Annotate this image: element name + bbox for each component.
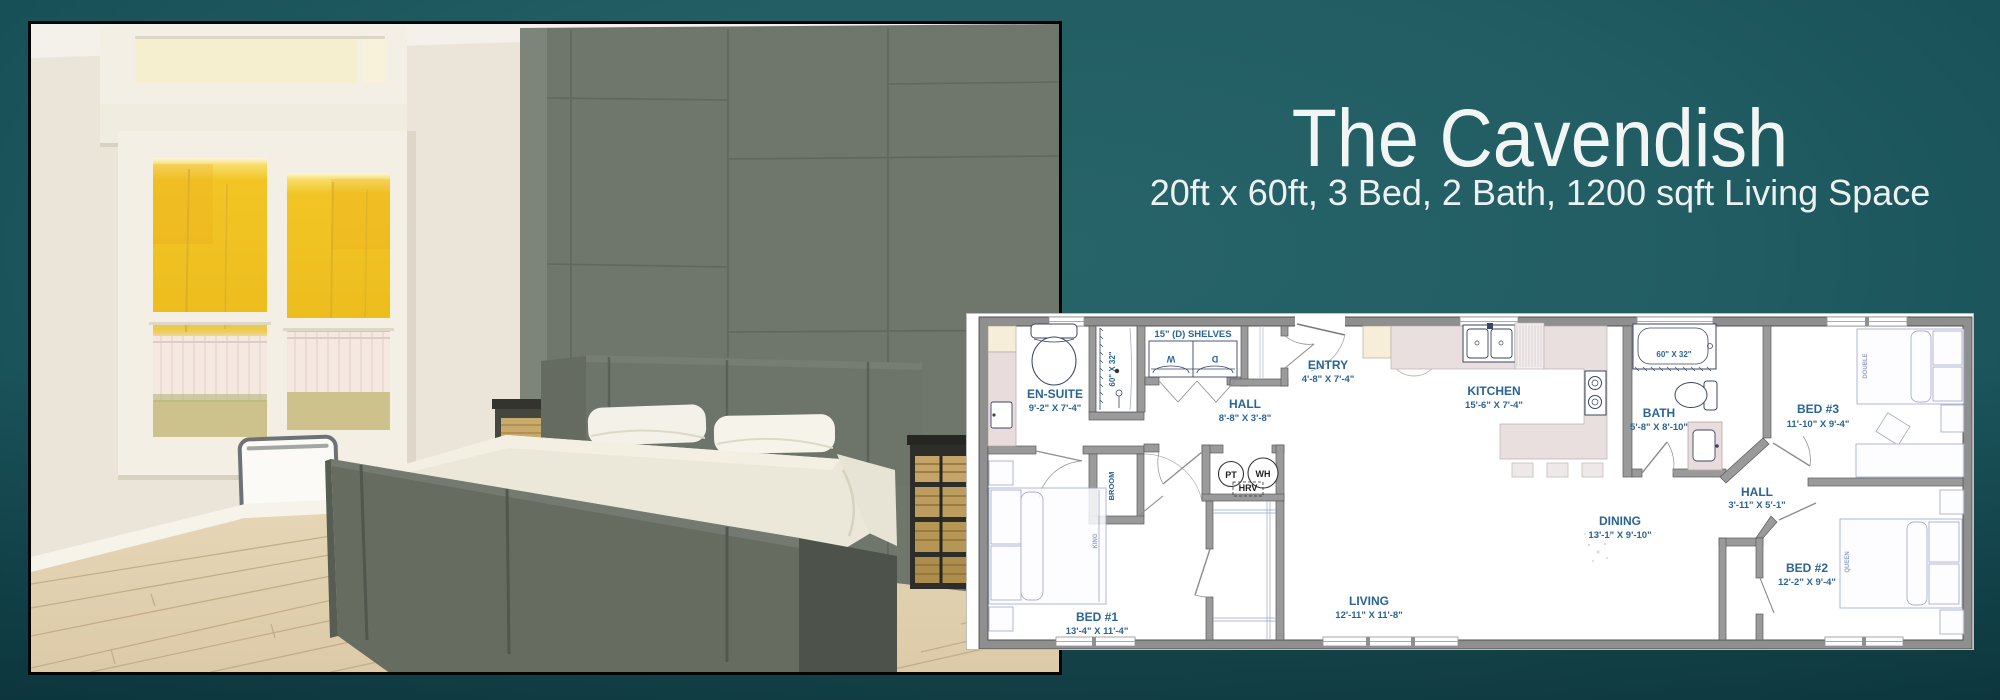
- svg-text:15" (D) SHELVES: 15" (D) SHELVES: [1154, 329, 1231, 340]
- svg-text:BED #1: BED #1: [1076, 610, 1118, 624]
- svg-text:KITCHEN: KITCHEN: [1467, 384, 1520, 398]
- svg-text:BED #3: BED #3: [1797, 402, 1839, 416]
- svg-text:BATH: BATH: [1643, 406, 1675, 420]
- svg-text:D: D: [1211, 354, 1218, 364]
- svg-text:DOUBLE: DOUBLE: [1863, 353, 1869, 378]
- svg-text:5'-8" X 8'-10": 5'-8" X 8'-10": [1630, 422, 1688, 433]
- svg-text:11'-10" X 9'-4": 11'-10" X 9'-4": [1787, 419, 1850, 430]
- svg-text:DINING: DINING: [1599, 514, 1641, 528]
- svg-text:HALL: HALL: [1741, 485, 1773, 499]
- svg-text:12'-2" X 9'-4": 12'-2" X 9'-4": [1778, 577, 1836, 588]
- svg-text:13'-4" X 11'-4": 13'-4" X 11'-4": [1066, 626, 1129, 637]
- svg-text:4'-8" X 7'-4": 4'-8" X 7'-4": [1302, 374, 1355, 385]
- svg-text:BED #2: BED #2: [1786, 561, 1828, 575]
- svg-text:3'-11" X 5'-1": 3'-11" X 5'-1": [1728, 500, 1785, 511]
- svg-text:W: W: [1166, 354, 1175, 364]
- svg-text:60" X 32": 60" X 32": [1108, 351, 1117, 386]
- svg-text:9'-2" X 7'-4": 9'-2" X 7'-4": [1029, 403, 1082, 414]
- svg-text:PT: PT: [1225, 470, 1237, 480]
- svg-text:60" X 32": 60" X 32": [1656, 350, 1691, 359]
- svg-text:13'-1" X 9'-10": 13'-1" X 9'-10": [1588, 530, 1651, 541]
- svg-text:BROOM: BROOM: [1107, 472, 1116, 501]
- svg-text:HRV: HRV: [1239, 483, 1258, 493]
- svg-text:HALL: HALL: [1229, 397, 1261, 411]
- svg-text:QUEEN: QUEEN: [1845, 551, 1851, 572]
- svg-text:KING: KING: [1093, 533, 1099, 548]
- svg-text:LIVING: LIVING: [1349, 594, 1389, 608]
- svg-text:EN-SUITE: EN-SUITE: [1027, 387, 1083, 401]
- svg-text:WH: WH: [1256, 469, 1271, 479]
- svg-text:ENTRY: ENTRY: [1308, 358, 1348, 372]
- svg-text:15'-6" X 7'-4": 15'-6" X 7'-4": [1465, 400, 1523, 411]
- svg-text:8'-8" X 3'-8": 8'-8" X 3'-8": [1219, 413, 1272, 424]
- svg-text:12'-11" X 11'-8": 12'-11" X 11'-8": [1335, 610, 1402, 621]
